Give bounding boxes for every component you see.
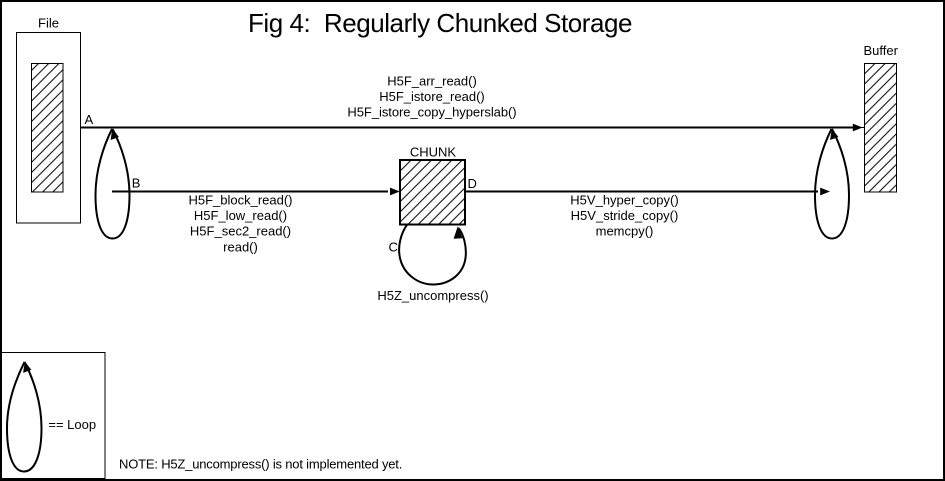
- svg-text:H5F_istore_read(): H5F_istore_read(): [379, 89, 485, 104]
- svg-text:H5F_sec2_read(): H5F_sec2_read(): [190, 224, 291, 239]
- svg-text:H5V_stride_copy(): H5V_stride_copy(): [571, 208, 679, 223]
- svg-text:Buffer: Buffer: [864, 43, 899, 58]
- svg-text:B: B: [132, 176, 141, 191]
- svg-text:H5F_low_read(): H5F_low_read(): [194, 208, 287, 223]
- svg-text:memcpy(): memcpy(): [596, 224, 654, 239]
- svg-text:NOTE: H5Z_uncompress() is not: NOTE: H5Z_uncompress() is not implemente…: [119, 456, 402, 471]
- svg-text:H5Z_uncompress(): H5Z_uncompress(): [377, 288, 488, 303]
- svg-text:C: C: [389, 240, 398, 255]
- svg-text:H5F_istore_copy_hyperslab(): H5F_istore_copy_hyperslab(): [347, 105, 516, 120]
- svg-text:H5F_block_read(): H5F_block_read(): [188, 192, 292, 207]
- svg-text:D: D: [468, 176, 477, 191]
- svg-text:Fig 4: Regularly Chunked Stor: Fig 4: Regularly Chunked Storage: [248, 8, 632, 38]
- svg-text:H5F_arr_read(): H5F_arr_read(): [387, 74, 477, 89]
- svg-text:File: File: [38, 16, 59, 31]
- svg-text:A: A: [85, 112, 94, 127]
- svg-text:read(): read(): [223, 239, 258, 254]
- svg-text:CHUNK: CHUNK: [410, 145, 457, 160]
- svg-text:== Loop: == Loop: [48, 417, 96, 432]
- svg-text:H5V_hyper_copy(): H5V_hyper_copy(): [570, 192, 678, 207]
